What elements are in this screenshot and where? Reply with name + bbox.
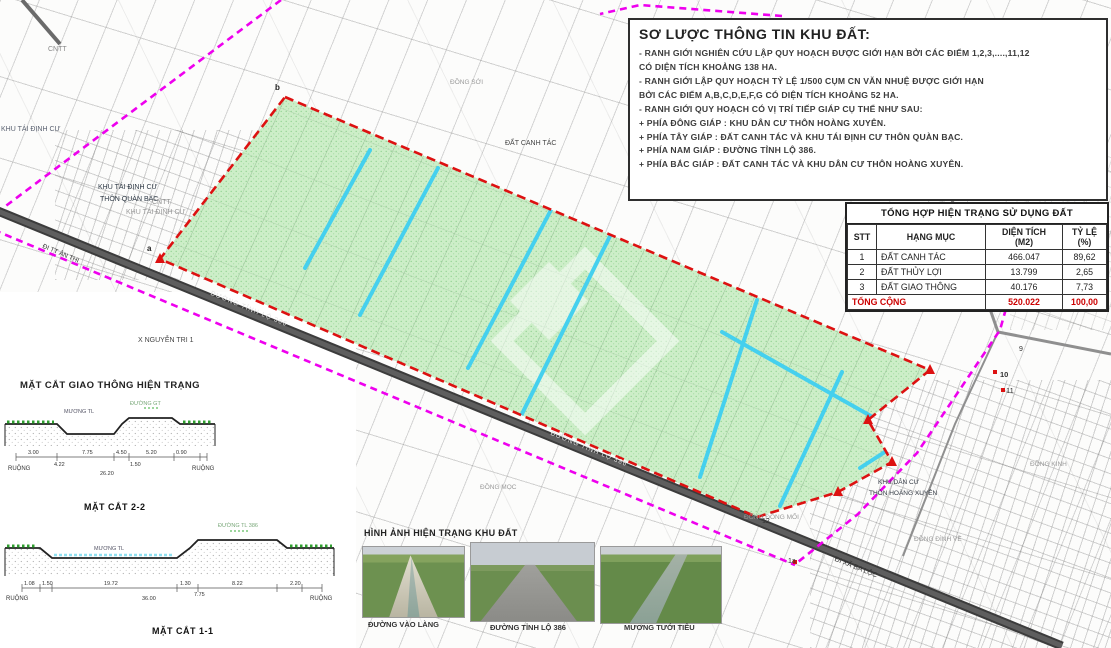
dim: 19.72 <box>104 581 118 587</box>
boundary-point-label: 11 <box>1006 387 1014 395</box>
map-label: KHU DÂN CƯ <box>878 479 919 486</box>
col-header-hang-muc: HẠNG MỤC <box>877 225 986 250</box>
table-row: 2 ĐẤT THỦY LỢI 13.799 2,65 <box>848 265 1107 280</box>
photo-caption: MƯƠNG TƯỚI TIÊU <box>624 623 695 632</box>
map-label: ĐỒNG ĐỒNG MỐI <box>744 514 799 521</box>
boundary-point-label: b <box>275 84 280 93</box>
map-label: X NGUYỄN TRI 1 <box>138 337 194 345</box>
photo-ditch-shape <box>363 547 464 617</box>
table-row: 1 ĐẤT CANH TÁC 466.047 89,62 <box>848 250 1107 265</box>
map-label: CNTT <box>152 199 171 207</box>
dim: 2.20 <box>290 581 301 587</box>
table-header-row: STT HẠNG MỤC DIỆN TÍCH (M2) TỶ LỆ (%) <box>848 225 1107 250</box>
cell-hang-muc: ĐẤT THỦY LỢI <box>877 265 986 280</box>
section-caption: MẶT CẮT 2-2 <box>84 502 146 512</box>
dim: 0.90 <box>176 450 187 456</box>
dim: 1.50 <box>130 462 141 468</box>
table-title: TỔNG HỢP HIỆN TRẠNG SỬ DỤNG ĐẤT <box>847 204 1107 224</box>
field-label: RUỘNG <box>8 465 31 472</box>
photo-canal-shape <box>601 547 721 623</box>
photo-provincial-road <box>470 542 595 622</box>
boundary-point-label: a <box>147 245 151 254</box>
boundary-point-label: 1a <box>788 558 796 566</box>
cell-ty-le: 2,65 <box>1063 265 1107 280</box>
col-header-ty-le: TỶ LỆ (%) <box>1063 225 1107 250</box>
cell-hang-muc: ĐẤT CANH TÁC <box>877 250 986 265</box>
boundary-point-label: 10 <box>1000 371 1008 379</box>
cell-stt: 1 <box>848 250 877 265</box>
cell-hang-muc: ĐẤT GIAO THÔNG <box>877 280 986 295</box>
table-total-row: TỔNG CỘNG 520.022 100,00 <box>848 295 1107 310</box>
map-label: ĐỒNG MỌC <box>480 484 516 491</box>
dim: 1.50 <box>42 581 53 587</box>
site-photos-panel: HÌNH ẢNH HIỆN TRẠNG KHU ĐẤT ĐƯỜNG VÀO LÀ… <box>362 528 727 646</box>
cell-dien-tich: 40.176 <box>986 280 1063 295</box>
photo-irrigation-canal <box>600 546 722 624</box>
map-label: ĐẤT CANH TÁC <box>505 140 556 148</box>
cell-stt: 3 <box>848 280 877 295</box>
photos-heading: HÌNH ẢNH HIỆN TRẠNG KHU ĐẤT <box>364 528 518 538</box>
dim-total: 26.20 <box>100 471 114 477</box>
map-label: ĐỒNG KINH <box>1030 461 1067 468</box>
boundary-point-label: 12 <box>762 518 770 526</box>
cell-dien-tich: 13.799 <box>986 265 1063 280</box>
dim: 7.75 <box>82 450 93 456</box>
photo-village-road <box>362 546 465 618</box>
boundary-point-label: 9 <box>1019 346 1023 354</box>
info-line: + PHÍA ĐÔNG GIÁP : KHU DÂN CƯ THÔN HOÀNG… <box>639 117 1098 131</box>
map-label: THÔN QUÀN BẠC <box>100 196 158 204</box>
dim: 7.75 <box>194 592 205 598</box>
total-area: 520.022 <box>986 295 1063 310</box>
photo-caption: ĐƯỜNG VÀO LÀNG <box>368 620 439 629</box>
cell-stt: 2 <box>848 265 877 280</box>
cross-sections-heading: MẶT CẮT GIAO THÔNG HIỆN TRẠNG <box>20 380 200 391</box>
field-label: RUỘNG <box>192 465 215 472</box>
info-line: BỞI CÁC ĐIỂM A,B,C,D,E,F,G CÓ DIỆN TÍCH … <box>639 89 1098 103</box>
info-line: + PHÍA NAM GIÁP : ĐƯỜNG TỈNH LỘ 386. <box>639 144 1098 158</box>
canal-label: MƯƠNG TL <box>94 546 124 552</box>
total-ratio: 100,00 <box>1063 295 1107 310</box>
map-label: CNTT <box>48 46 67 54</box>
dim: 1.30 <box>180 581 191 587</box>
dim: 5.20 <box>146 450 157 456</box>
info-line: + PHÍA BẮC GIÁP : ĐẤT CANH TÁC VÀ KHU DÂ… <box>639 158 1098 172</box>
section-2-2-drawing: MƯƠNG TL ĐƯỜNG GT 3.00 7.75 4.50 5.20 0.… <box>2 396 237 496</box>
info-panel-title: SƠ LƯỢC THÔNG TIN KHU ĐẤT: <box>639 26 1098 42</box>
canal-label: MƯƠNG TL <box>64 409 94 415</box>
dim: 8.22 <box>232 581 243 587</box>
map-label: ĐỒNG ĐÌNH VỀ <box>914 536 962 543</box>
map-label: KHU TÁI ĐỊNH CƯ <box>126 209 186 217</box>
field-label: RUỘNG <box>310 595 333 602</box>
info-line: - RANH GIỚI QUY HOẠCH CÓ VỊ TRÍ TIẾP GIÁ… <box>639 103 1098 117</box>
dim: 4.22 <box>54 462 65 468</box>
map-label: KHU TÁI ĐỊNH CƯ <box>1 126 61 134</box>
road-label: ĐƯỜNG GT <box>130 400 161 407</box>
section-caption: MẶT CẮT 1-1 <box>152 626 214 636</box>
map-label: ĐỒNG SỚI <box>450 79 483 86</box>
info-line: + PHÍA TÂY GIÁP : ĐẤT CANH TÁC VÀ KHU TÁ… <box>639 131 1098 145</box>
dim: 36.00 <box>142 596 156 602</box>
col-header-dien-tich: DIỆN TÍCH (M2) <box>986 225 1063 250</box>
field-label: RUỘNG <box>6 595 29 602</box>
dim: 1.08 <box>24 581 35 587</box>
info-line: CÓ DIỆN TÍCH KHOẢNG 138 HA. <box>639 61 1098 75</box>
info-line: - RANH GIỚI LẬP QUY HOẠCH TỶ LỆ 1/500 CỤ… <box>639 75 1098 89</box>
map-label: THÔN HOÀNG XUYÊN <box>869 490 937 497</box>
land-use-summary-table: TỔNG HỢP HIỆN TRẠNG SỬ DỤNG ĐẤT STT HẠNG… <box>845 202 1109 312</box>
map-label: KHU TÁI ĐỊNH CƯ <box>98 184 158 192</box>
dim: 4.50 <box>116 450 127 456</box>
photo-caption: ĐƯỜNG TỈNH LỘ 386 <box>490 623 566 632</box>
road-label: ĐƯỜNG TL 386 <box>218 522 258 529</box>
site-info-panel: SƠ LƯỢC THÔNG TIN KHU ĐẤT: - RANH GIỚI N… <box>628 18 1108 201</box>
cell-dien-tich: 466.047 <box>986 250 1063 265</box>
dim: 3.00 <box>28 450 39 456</box>
photo-road-shape <box>471 543 594 621</box>
info-line: - RANH GIỚI NGHIÊN CỨU LẬP QUY HOẠCH ĐƯỢ… <box>639 47 1098 61</box>
total-label: TỔNG CỘNG <box>848 295 986 310</box>
col-header-stt: STT <box>848 225 877 250</box>
cell-ty-le: 7,73 <box>1063 280 1107 295</box>
table-row: 3 ĐẤT GIAO THÔNG 40.176 7,73 <box>848 280 1107 295</box>
section-1-1-drawing: MƯƠNG TL ĐƯỜNG TL 386 1.08 1.50 19.72 1.… <box>2 518 347 633</box>
cell-ty-le: 89,62 <box>1063 250 1107 265</box>
planning-map-page: CNTT KHU TÁI ĐỊNH CƯ KHU TÁI ĐỊNH CƯ THÔ… <box>0 0 1111 648</box>
